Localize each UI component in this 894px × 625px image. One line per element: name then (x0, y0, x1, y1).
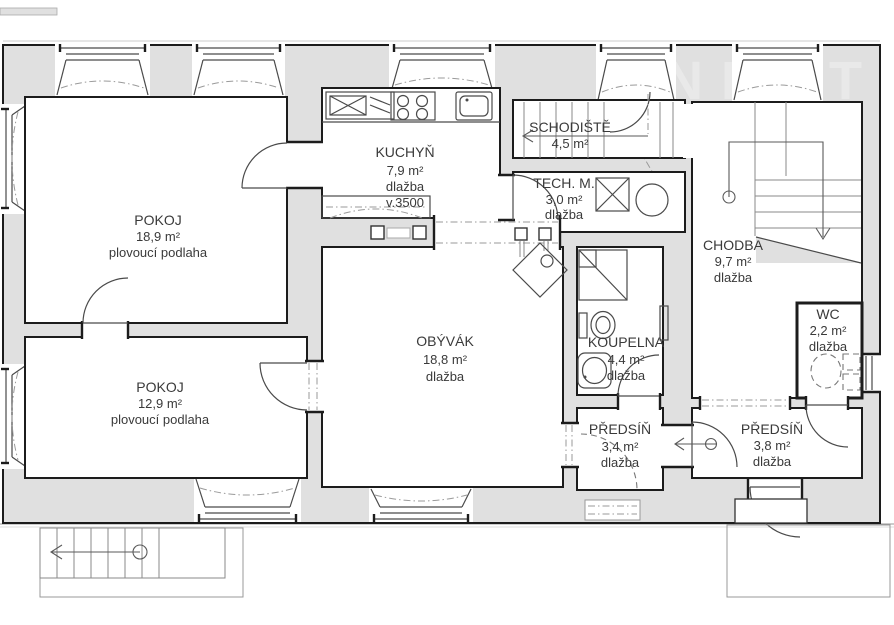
window (192, 44, 285, 96)
room-area: 18,9 m² (136, 229, 181, 244)
window (369, 488, 473, 522)
floor-plan-drawing: NEXT (0, 0, 894, 625)
room-label: CHODBA (703, 237, 764, 253)
room-area: 2,2 m² (810, 323, 848, 338)
room-label: TECH. M. (533, 175, 594, 191)
room-label: OBÝVÁK (416, 333, 474, 349)
passage-opening (561, 423, 579, 467)
passage-opening (683, 104, 694, 158)
room-floor: plovoucí podlaha (111, 412, 210, 427)
room-area: 3,0 m² (546, 192, 584, 207)
room-area: 4,4 m² (608, 352, 646, 367)
room-area: 18,8 m² (423, 352, 468, 367)
room-label: PŘEDSÍŇ (589, 421, 651, 437)
room-floor: plovoucí podlaha (109, 245, 208, 260)
room-area: 12,9 m² (138, 396, 183, 411)
room-area: 3,4 m² (602, 439, 640, 454)
room-label: KOUPELNA (588, 334, 665, 350)
room-area: 7,9 m² (387, 163, 425, 178)
room-area: 3,8 m² (754, 438, 792, 453)
room-floor: dlažba (714, 270, 753, 285)
room-height: v.3500 (386, 195, 424, 210)
window (389, 44, 495, 94)
room-label: POKOJ (136, 379, 183, 395)
room-label: KUCHYŇ (375, 144, 434, 160)
window (55, 44, 150, 96)
room-area: 4,5 m² (552, 136, 590, 151)
room-label: PŘEDSÍŇ (741, 421, 803, 437)
room-pokoj-1 (25, 97, 287, 323)
window (732, 44, 823, 102)
room-floor: dlažba (386, 179, 425, 194)
room-area: 9,7 m² (715, 254, 753, 269)
room-floor: dlažba (545, 207, 584, 222)
room-floor: dlažba (753, 454, 792, 469)
passage-opening (700, 396, 790, 410)
room-label: SCHODIŠTĚ (529, 119, 611, 135)
room-obyvak (322, 247, 563, 487)
room-floor: dlažba (809, 339, 848, 354)
room-floor: dlažba (426, 369, 465, 384)
cellar-window (585, 500, 640, 520)
neighbor-wall-fragment (0, 8, 57, 15)
room-floor: dlažba (607, 368, 646, 383)
room-label: POKOJ (134, 212, 181, 228)
room-label: WC (816, 306, 839, 322)
entrance-step (735, 499, 807, 523)
room-floor: dlažba (601, 455, 640, 470)
window (194, 479, 301, 522)
floor-plan-canvas: NEXT (0, 0, 894, 625)
